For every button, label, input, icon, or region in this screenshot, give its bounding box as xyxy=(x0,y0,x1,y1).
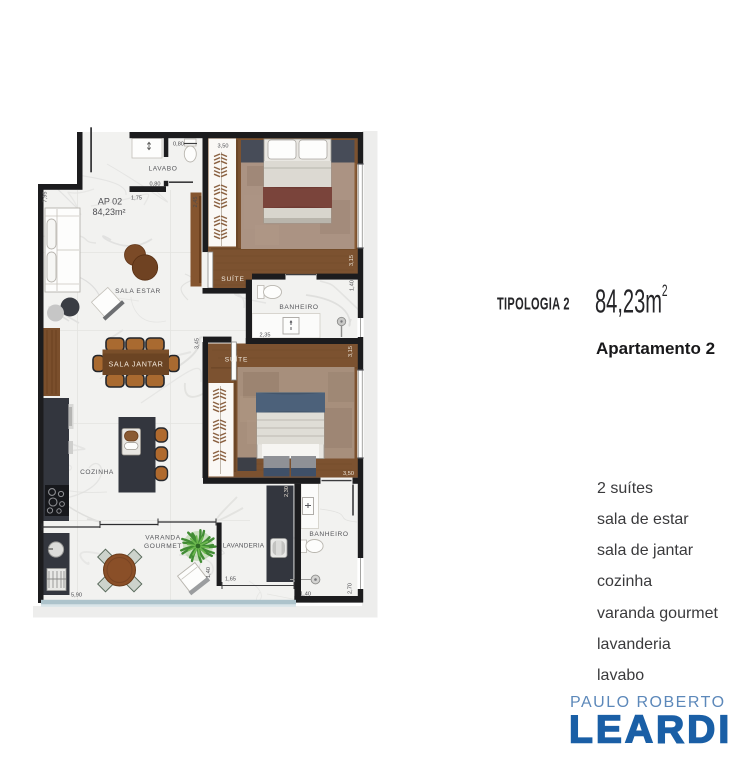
svg-text:3,45: 3,45 xyxy=(195,338,201,349)
svg-text:2: 2 xyxy=(662,280,668,299)
svg-text:3,15: 3,15 xyxy=(348,346,354,357)
svg-text:3,15: 3,15 xyxy=(349,255,355,266)
svg-text:lavabo: lavabo xyxy=(597,667,644,684)
svg-text:AP 02: AP 02 xyxy=(98,197,122,207)
svg-text:COZINHA: COZINHA xyxy=(80,469,114,476)
svg-text:Apartamento 2: Apartamento 2 xyxy=(596,339,715,358)
svg-text:sala de jantar: sala de jantar xyxy=(597,542,694,559)
svg-text:2,35: 2,35 xyxy=(260,333,271,339)
svg-text:7,95: 7,95 xyxy=(43,192,49,203)
svg-text:1,75: 1,75 xyxy=(131,196,142,202)
svg-text:sala de estar: sala de estar xyxy=(597,511,689,528)
svg-text:varanda gourmet: varanda gourmet xyxy=(597,605,719,622)
svg-text:0,80: 0,80 xyxy=(150,181,161,187)
svg-text:GOURMET: GOURMET xyxy=(144,543,182,550)
svg-text:lavanderia: lavanderia xyxy=(597,636,671,653)
svg-text:84,23m: 84,23m xyxy=(595,282,662,320)
svg-text:2,45: 2,45 xyxy=(193,197,199,208)
svg-text:LAVABO: LAVABO xyxy=(148,166,177,173)
svg-text:VARANDA: VARANDA xyxy=(145,535,181,542)
svg-text:SUÍTE: SUÍTE xyxy=(221,274,244,283)
svg-text:LAVANDERIA: LAVANDERIA xyxy=(223,543,265,550)
svg-text:BANHEIRO: BANHEIRO xyxy=(309,531,348,538)
svg-text:84,23m²: 84,23m² xyxy=(92,207,125,217)
svg-text:LEARDI: LEARDI xyxy=(569,709,732,752)
svg-text:2,70: 2,70 xyxy=(347,583,353,594)
svg-text:TIPOLOGIA 2: TIPOLOGIA 2 xyxy=(497,295,570,314)
svg-text:SALA JANTAR: SALA JANTAR xyxy=(108,360,163,369)
svg-text:0,80: 0,80 xyxy=(173,142,184,148)
svg-text:SALA ESTAR: SALA ESTAR xyxy=(115,288,161,295)
svg-text:2,30: 2,30 xyxy=(284,486,290,497)
svg-text:1,65: 1,65 xyxy=(225,577,236,583)
svg-text:2 suítes: 2 suítes xyxy=(597,480,653,497)
svg-text:BANHEIRO: BANHEIRO xyxy=(279,304,318,311)
svg-text:1,40: 1,40 xyxy=(300,592,311,598)
svg-text:1,40: 1,40 xyxy=(206,567,212,578)
svg-text:3,50: 3,50 xyxy=(343,471,354,477)
svg-text:cozinha: cozinha xyxy=(597,573,652,590)
svg-text:5,90: 5,90 xyxy=(71,593,82,599)
svg-text:3,50: 3,50 xyxy=(218,144,229,150)
svg-text:1,40: 1,40 xyxy=(350,280,356,291)
svg-text:SUÍTE: SUÍTE xyxy=(225,355,248,364)
